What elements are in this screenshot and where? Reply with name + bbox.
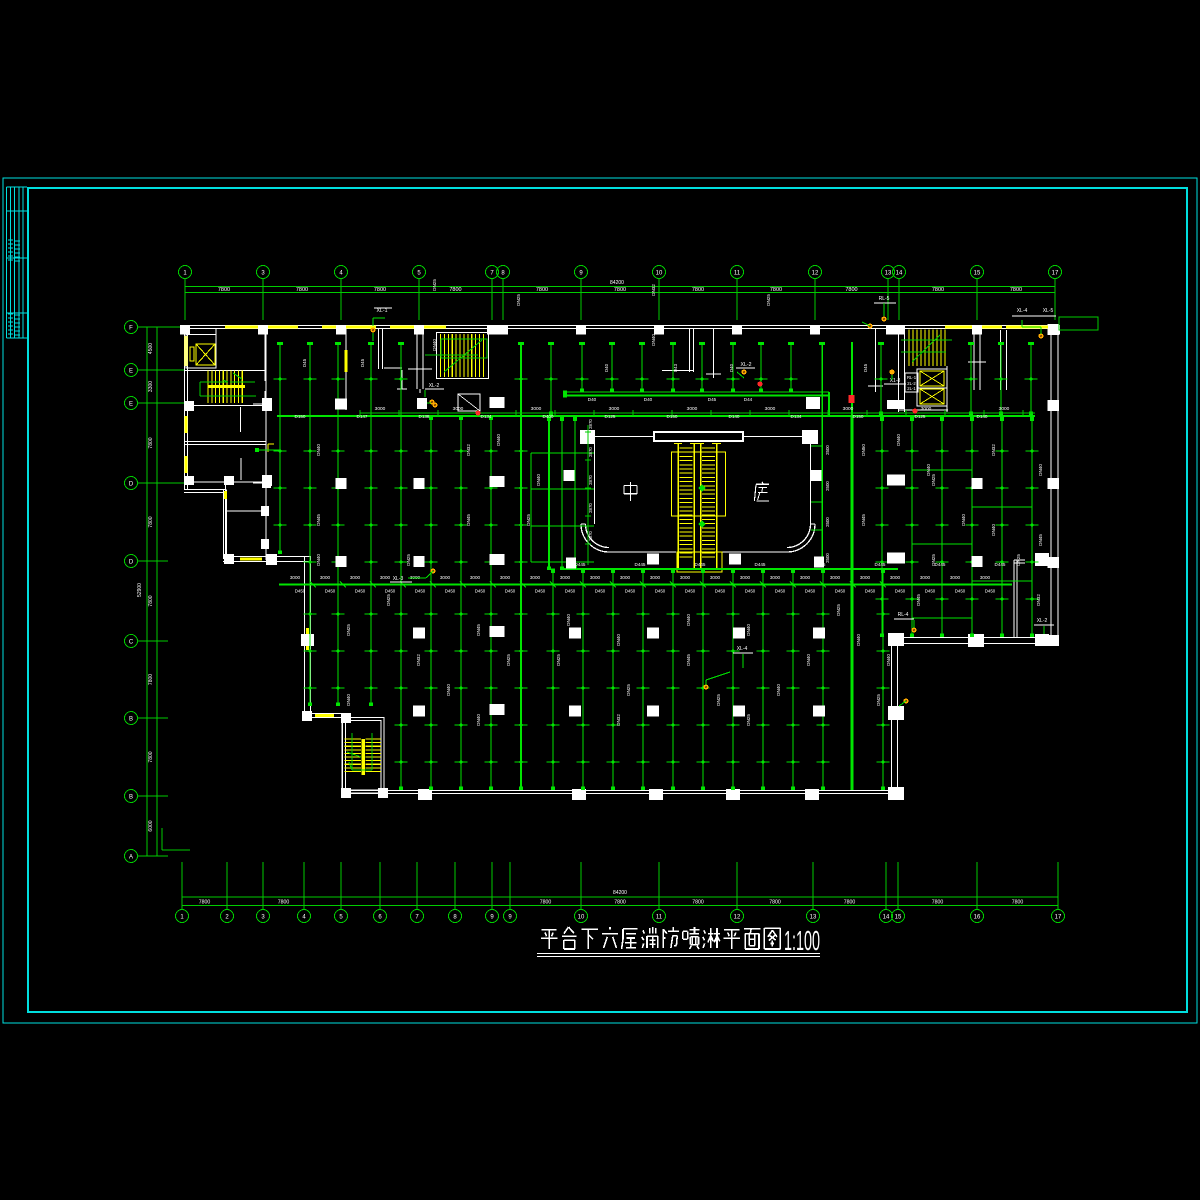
svg-text:12: 12 (734, 915, 741, 921)
svg-text:A: A (129, 855, 133, 861)
svg-text:3000: 3000 (920, 575, 931, 580)
svg-text:7800: 7800 (148, 437, 154, 448)
svg-text:7800: 7800 (536, 287, 548, 293)
svg-text:D450: D450 (895, 589, 906, 594)
svg-text:15: 15 (895, 915, 902, 921)
svg-text:D450: D450 (295, 589, 306, 594)
svg-text:DN40: DN40 (886, 654, 891, 666)
svg-text:DN25: DN25 (556, 654, 561, 666)
svg-text:XL-2: XL-2 (429, 383, 440, 389)
svg-text:2870: 2870 (588, 503, 593, 513)
svg-text:7800: 7800 (296, 287, 308, 293)
svg-text:DN32: DN32 (416, 654, 421, 666)
svg-text:RL-1: RL-1 (907, 375, 917, 380)
svg-text:3000: 3000 (500, 575, 511, 580)
svg-text:3000: 3000 (470, 575, 481, 580)
svg-text:3000: 3000 (680, 575, 691, 580)
svg-text:7800: 7800 (614, 900, 626, 906)
svg-text:3000: 3000 (650, 575, 661, 580)
svg-text:DN32: DN32 (651, 284, 656, 296)
svg-text:DN32: DN32 (1036, 594, 1041, 606)
svg-text:D450: D450 (385, 589, 396, 594)
svg-text:7800: 7800 (692, 287, 704, 293)
svg-text:D450: D450 (745, 589, 756, 594)
svg-text:D: D (129, 482, 134, 488)
svg-text:3000: 3000 (560, 575, 571, 580)
svg-text:D445: D445 (755, 562, 766, 567)
svg-text:D450: D450 (985, 589, 996, 594)
svg-text:XL-2: XL-2 (1037, 618, 1048, 624)
svg-text:DN40: DN40 (316, 444, 321, 456)
svg-text:3000: 3000 (830, 575, 841, 580)
svg-text:DN40: DN40 (746, 624, 751, 636)
svg-text:3000: 3000 (320, 575, 331, 580)
svg-text:D450: D450 (355, 589, 366, 594)
svg-text:D450: D450 (715, 589, 726, 594)
svg-text:7800: 7800 (770, 287, 782, 293)
svg-text:10: 10 (578, 915, 585, 921)
svg-text:3000: 3000 (531, 406, 542, 412)
svg-text:D450: D450 (655, 589, 666, 594)
svg-text:D40: D40 (729, 363, 734, 372)
svg-text:7800: 7800 (374, 287, 386, 293)
svg-text:DN25: DN25 (432, 279, 437, 291)
svg-text:DN40: DN40 (446, 684, 451, 696)
svg-text:DN40: DN40 (476, 714, 481, 726)
svg-text:F: F (129, 326, 133, 332)
svg-text:52900: 52900 (137, 583, 143, 597)
svg-text:D45: D45 (360, 358, 365, 367)
svg-text:3000: 3000 (740, 575, 751, 580)
svg-text:XL-2: XL-2 (741, 362, 752, 368)
svg-text:DN40: DN40 (806, 654, 811, 666)
svg-text:17: 17 (1055, 915, 1062, 921)
svg-text:XL-3: XL-3 (393, 576, 404, 582)
svg-text:2500: 2500 (825, 445, 830, 455)
svg-text:D450: D450 (565, 589, 576, 594)
svg-text:DN45: DN45 (1038, 534, 1043, 546)
svg-text:DN40: DN40 (346, 694, 351, 706)
svg-text:1:100: 1:100 (784, 925, 820, 956)
svg-text:DN25: DN25 (931, 554, 936, 566)
svg-text:D450: D450 (325, 589, 336, 594)
svg-text:7800: 7800 (148, 516, 154, 527)
svg-text:3000: 3000 (290, 575, 301, 580)
svg-text:DN25: DN25 (386, 594, 391, 606)
svg-text:3000: 3000 (375, 406, 386, 412)
svg-text:2870: 2870 (588, 531, 593, 541)
svg-text:DN32: DN32 (616, 714, 621, 726)
svg-text:XL-1: XL-1 (377, 308, 388, 314)
svg-text:RL-4: RL-4 (898, 612, 909, 618)
svg-text:D400: D400 (543, 414, 554, 419)
svg-text:D450: D450 (625, 589, 636, 594)
svg-text:3000: 3000 (590, 575, 601, 580)
svg-text:2L-1: 2L-1 (907, 386, 916, 391)
svg-text:7800: 7800 (1010, 287, 1022, 293)
svg-text:DN45: DN45 (686, 654, 691, 666)
svg-text:7800: 7800 (1012, 900, 1024, 906)
svg-text:D40: D40 (588, 397, 597, 402)
svg-text:DN45: DN45 (916, 594, 921, 606)
svg-text:D450: D450 (835, 589, 846, 594)
svg-text:XL-5: XL-5 (1043, 308, 1054, 314)
svg-text:14: 14 (883, 915, 890, 921)
svg-text:3000: 3000 (999, 406, 1010, 412)
svg-text:DN25: DN25 (506, 654, 511, 666)
svg-text:D450: D450 (925, 589, 936, 594)
svg-text:7800: 7800 (148, 595, 154, 606)
svg-text:11: 11 (656, 915, 663, 921)
svg-text:D40: D40 (604, 363, 609, 372)
svg-text:D450: D450 (685, 589, 696, 594)
svg-text:7800: 7800 (845, 287, 857, 293)
svg-text:13: 13 (885, 271, 892, 277)
svg-text:2870: 2870 (588, 447, 593, 457)
svg-text:DN25: DN25 (526, 514, 531, 526)
svg-text:3000: 3000 (350, 575, 361, 580)
svg-text:13: 13 (810, 915, 817, 921)
svg-text:7800: 7800 (932, 287, 944, 293)
svg-text:DN45: DN45 (861, 514, 866, 526)
svg-text:3000: 3000 (770, 575, 781, 580)
svg-text:12: 12 (812, 271, 819, 277)
svg-text:D44: D44 (744, 397, 753, 402)
svg-text:D: D (129, 560, 134, 566)
svg-text:3000: 3000 (800, 575, 811, 580)
svg-text:XL-4: XL-4 (737, 646, 748, 652)
svg-text:RL-5: RL-5 (879, 296, 890, 302)
svg-text:7800: 7800 (932, 900, 944, 906)
svg-text:84200: 84200 (613, 890, 627, 896)
svg-text:D150: D150 (667, 414, 678, 419)
svg-text:DN45: DN45 (316, 514, 321, 526)
svg-text:7800: 7800 (278, 900, 290, 906)
svg-text:D445: D445 (995, 562, 1006, 567)
svg-text:D450: D450 (595, 589, 606, 594)
svg-text:3300: 3300 (148, 381, 154, 392)
svg-text:D450: D450 (865, 589, 876, 594)
svg-text:DN40: DN40 (991, 524, 996, 536)
svg-text:D150: D150 (295, 414, 306, 419)
svg-text:DN50: DN50 (861, 444, 866, 456)
svg-text:2500: 2500 (825, 517, 830, 527)
svg-text:DN40: DN40 (776, 684, 781, 696)
svg-text:D45: D45 (863, 363, 868, 372)
svg-text:DN25: DN25 (836, 604, 841, 616)
svg-text:16: 16 (974, 915, 981, 921)
svg-text:D43: D43 (673, 363, 678, 372)
svg-text:DN25: DN25 (516, 294, 521, 306)
svg-text:2500: 2500 (825, 481, 830, 491)
svg-text:D150: D150 (853, 414, 864, 419)
svg-text:7800: 7800 (148, 674, 154, 685)
svg-text:D445: D445 (575, 562, 586, 567)
svg-text:D40: D40 (644, 397, 653, 402)
svg-text:14: 14 (896, 271, 903, 277)
svg-text:7800: 7800 (614, 287, 626, 293)
svg-text:DN40: DN40 (856, 634, 861, 646)
svg-text:3000: 3000 (860, 575, 871, 580)
svg-text:D450: D450 (475, 589, 486, 594)
svg-text:D445: D445 (875, 562, 886, 567)
svg-text:D450: D450 (805, 589, 816, 594)
svg-text:3000: 3000 (609, 406, 620, 412)
svg-text:7800: 7800 (692, 900, 704, 906)
svg-text:DN45: DN45 (466, 514, 471, 526)
svg-text:DN40: DN40 (316, 554, 321, 566)
svg-text:DN25: DN25 (626, 684, 631, 696)
svg-text:D450: D450 (775, 589, 786, 594)
svg-text:7800: 7800 (199, 900, 211, 906)
svg-text:D134: D134 (481, 414, 492, 419)
svg-text:DN45: DN45 (476, 624, 481, 636)
svg-text:DN40: DN40 (896, 434, 901, 446)
svg-text:3000: 3000 (687, 406, 698, 412)
svg-text:7800: 7800 (218, 287, 230, 293)
svg-text:7800: 7800 (540, 900, 552, 906)
svg-text:7800: 7800 (148, 751, 154, 762)
svg-text:DN40: DN40 (961, 514, 966, 526)
svg-text:D450: D450 (955, 589, 966, 594)
svg-text:2870: 2870 (588, 419, 593, 429)
svg-text:3000: 3000 (980, 575, 991, 580)
svg-text:D140: D140 (729, 414, 740, 419)
svg-text:XL-4: XL-4 (1017, 308, 1028, 314)
svg-text:DN40: DN40 (686, 614, 691, 626)
svg-text:DN40: DN40 (926, 464, 931, 476)
svg-text:3000: 3000 (620, 575, 631, 580)
svg-text:D445: D445 (935, 562, 946, 567)
svg-text:D45: D45 (708, 397, 717, 402)
svg-text:3000: 3000 (530, 575, 541, 580)
svg-text:7800: 7800 (769, 900, 781, 906)
svg-text:D45: D45 (302, 358, 307, 367)
svg-text:3000: 3000 (950, 575, 961, 580)
svg-text:D138: D138 (419, 414, 430, 419)
svg-text:DN25: DN25 (406, 554, 411, 566)
svg-text:D445: D445 (635, 562, 646, 567)
svg-text:D450: D450 (535, 589, 546, 594)
svg-text:E: E (129, 402, 133, 408)
svg-text:7800: 7800 (844, 900, 856, 906)
svg-text:11: 11 (734, 271, 741, 277)
svg-text:C: C (129, 640, 134, 646)
svg-text:2870: 2870 (588, 475, 593, 485)
svg-text:X1-8: X1-8 (890, 378, 901, 384)
svg-text:6000: 6000 (148, 820, 154, 831)
svg-text:B: B (129, 717, 133, 723)
svg-text:DN25: DN25 (716, 694, 721, 706)
svg-text:DN32: DN32 (991, 444, 996, 456)
svg-text:DN40: DN40 (536, 474, 541, 486)
svg-text:D125: D125 (915, 414, 926, 419)
svg-text:DN40: DN40 (651, 334, 656, 346)
svg-text:D134: D134 (791, 414, 802, 419)
svg-text:B: B (129, 795, 133, 801)
svg-text:2500: 2500 (825, 553, 830, 563)
svg-text:DN40: DN40 (1038, 464, 1043, 476)
svg-text:4500: 4500 (148, 343, 154, 354)
svg-text:DN25: DN25 (346, 624, 351, 636)
svg-text:D147: D147 (357, 414, 368, 419)
svg-text:D140: D140 (977, 414, 988, 419)
svg-text:DN25: DN25 (746, 714, 751, 726)
svg-text:3000: 3000 (921, 406, 932, 412)
svg-text:E: E (129, 369, 133, 375)
svg-text:7800: 7800 (449, 287, 461, 293)
svg-text:D445: D445 (695, 562, 706, 567)
svg-text:3000: 3000 (380, 575, 391, 580)
svg-text:3000: 3000 (765, 406, 776, 412)
svg-text:DN40: DN40 (496, 434, 501, 446)
svg-text:17: 17 (1052, 271, 1059, 277)
svg-text:DN32: DN32 (466, 444, 471, 456)
svg-text:15: 15 (974, 271, 981, 277)
svg-text:3000: 3000 (843, 406, 854, 412)
svg-text:84200: 84200 (610, 280, 624, 286)
svg-text:D450: D450 (415, 589, 426, 594)
svg-text:3000: 3000 (710, 575, 721, 580)
svg-text:DN40: DN40 (616, 634, 621, 646)
svg-text:D125: D125 (605, 414, 616, 419)
svg-text:D450: D450 (445, 589, 456, 594)
svg-text:3000: 3000 (440, 575, 451, 580)
svg-text:DN25: DN25 (766, 294, 771, 306)
svg-text:10: 10 (656, 271, 663, 277)
svg-text:D450: D450 (505, 589, 516, 594)
svg-text:DN25: DN25 (931, 474, 936, 486)
svg-text:3000: 3000 (890, 575, 901, 580)
svg-text:DN25: DN25 (1016, 554, 1021, 566)
svg-text:DN40: DN40 (566, 614, 571, 626)
svg-text:DN25: DN25 (876, 694, 881, 706)
